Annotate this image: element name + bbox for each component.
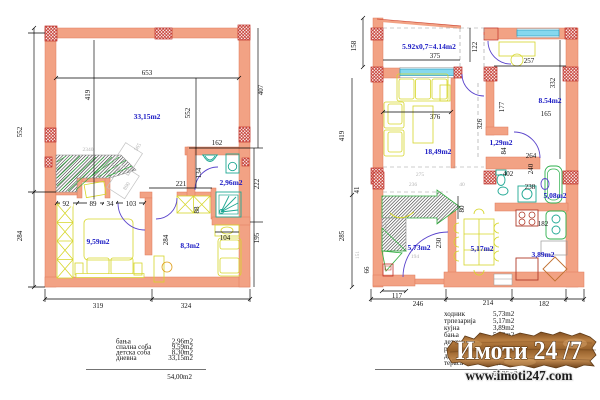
svg-text:284: 284 [162, 234, 170, 245]
svg-text:240: 240 [527, 163, 535, 174]
svg-text:326: 326 [476, 118, 484, 129]
svg-text:18,49m2: 18,49m2 [425, 147, 452, 156]
svg-text:33,15m2: 33,15m2 [134, 112, 161, 121]
svg-text:246: 246 [413, 300, 424, 308]
svg-text:41: 41 [353, 186, 361, 194]
svg-text:3,89m2: 3,89m2 [531, 250, 554, 259]
svg-text:375: 375 [430, 52, 441, 60]
svg-text:5,73m2: 5,73m2 [407, 243, 430, 252]
svg-text:66: 66 [363, 266, 371, 274]
svg-text:653: 653 [142, 69, 153, 77]
svg-text:153: 153 [383, 224, 389, 233]
svg-text:5,08m2: 5,08m2 [543, 191, 566, 200]
svg-text:419: 419 [338, 130, 346, 141]
svg-text:195: 195 [253, 232, 261, 243]
svg-text:194: 194 [411, 254, 420, 260]
svg-text:324: 324 [181, 302, 192, 310]
svg-text:33,15m2: 33,15m2 [168, 354, 193, 362]
svg-text:5.92x0,7=4.14m2: 5.92x0,7=4.14m2 [402, 42, 456, 51]
svg-text:103: 103 [126, 200, 137, 208]
svg-text:40: 40 [459, 182, 465, 188]
svg-text:1,29m2: 1,29m2 [489, 138, 512, 147]
svg-text:84: 84 [500, 147, 508, 155]
svg-text:122: 122 [471, 41, 479, 52]
svg-text:285: 285 [338, 230, 346, 241]
svg-text:182: 182 [539, 300, 550, 308]
svg-text:151: 151 [355, 251, 361, 260]
svg-text:54,00m2: 54,00m2 [167, 373, 192, 381]
svg-text:104: 104 [220, 234, 231, 242]
svg-text:5,17m2: 5,17m2 [470, 244, 493, 253]
svg-text:80: 80 [458, 205, 466, 213]
svg-text:182: 182 [538, 220, 549, 228]
svg-text:34: 34 [107, 200, 115, 208]
svg-text:552: 552 [184, 107, 192, 118]
svg-text:8,3m2: 8,3m2 [180, 241, 200, 250]
svg-text:158: 158 [350, 40, 358, 51]
svg-text:222: 222 [253, 178, 261, 189]
svg-text:177: 177 [498, 101, 506, 112]
svg-text:www.imoti247.com: www.imoti247.com [466, 369, 573, 384]
svg-text:134: 134 [195, 167, 203, 178]
svg-text:2,96m2: 2,96m2 [219, 178, 242, 187]
svg-text:88: 88 [193, 206, 201, 214]
svg-text:284: 284 [16, 230, 24, 241]
svg-text:117: 117 [392, 292, 403, 300]
svg-text:552: 552 [16, 126, 24, 137]
svg-text:2340: 2340 [83, 147, 94, 153]
svg-text:162: 162 [212, 139, 223, 147]
svg-text:Имоти 24 /7: Имоти 24 /7 [456, 336, 582, 365]
svg-text:дневна: дневна [116, 354, 137, 362]
svg-text:264: 264 [526, 152, 537, 160]
svg-text:275: 275 [416, 172, 425, 178]
svg-text:257: 257 [524, 57, 535, 65]
svg-text:214: 214 [483, 299, 494, 307]
svg-text:402: 402 [503, 170, 514, 178]
svg-text:9,59m2: 9,59m2 [86, 237, 109, 246]
svg-text:221: 221 [176, 180, 187, 188]
svg-text:376: 376 [430, 113, 441, 121]
svg-text:419: 419 [84, 89, 92, 100]
svg-text:236: 236 [409, 182, 418, 188]
svg-text:8.54m2: 8.54m2 [538, 96, 561, 105]
svg-text:319: 319 [93, 302, 104, 310]
svg-text:332: 332 [549, 77, 557, 88]
svg-text:407: 407 [257, 84, 265, 95]
svg-text:230: 230 [435, 237, 443, 248]
svg-text:89: 89 [90, 200, 98, 208]
svg-text:92: 92 [63, 200, 71, 208]
svg-text:238: 238 [525, 183, 536, 191]
svg-text:165: 165 [541, 110, 552, 118]
